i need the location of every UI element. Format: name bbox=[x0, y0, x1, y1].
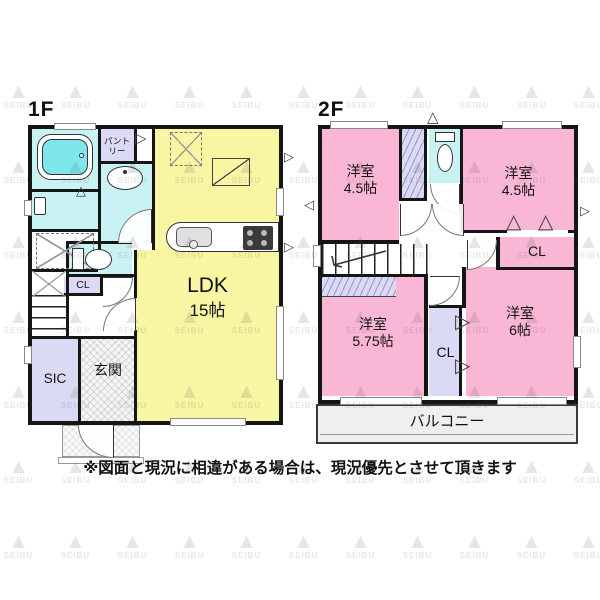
watermark-tile: ▲SEIBU bbox=[0, 532, 47, 560]
mountain-logo-icon: ▲ bbox=[560, 82, 600, 101]
stair-treads-1f bbox=[32, 295, 66, 338]
stove-burner-icon bbox=[261, 230, 267, 236]
watermark-brand: SEIBU bbox=[218, 101, 275, 110]
window bbox=[502, 121, 562, 129]
mountain-logo-icon: ▲ bbox=[47, 82, 104, 101]
bedroom-se-size: 6帖 bbox=[509, 322, 531, 340]
folding-door-icon: △ bbox=[76, 184, 86, 197]
watermark-brand: SEIBU bbox=[503, 551, 560, 560]
toilet-bowl-2f-icon bbox=[437, 144, 453, 172]
mountain-logo-icon: ▲ bbox=[161, 532, 218, 551]
bedroom-se-name: 洋室 bbox=[506, 305, 534, 323]
window bbox=[340, 397, 422, 405]
entrance-label: 玄関 bbox=[80, 360, 136, 382]
bedroom-ne-name: 洋室 bbox=[505, 165, 533, 183]
closet-ne-label: CL bbox=[500, 237, 574, 267]
mountain-logo-icon: ▲ bbox=[389, 82, 446, 101]
watermark-tile: ▲SEIBU bbox=[503, 532, 560, 560]
mountain-logo-icon: ▲ bbox=[104, 532, 161, 551]
watermark-tile: ▲SEIBU bbox=[389, 532, 446, 560]
window bbox=[573, 336, 581, 368]
wall bbox=[322, 274, 428, 277]
watermark-brand: SEIBU bbox=[389, 551, 446, 560]
watermark-tile: ▲SEIBU bbox=[218, 82, 275, 110]
gable-vent-icon: △ bbox=[427, 110, 439, 125]
watermark-brand: SEIBU bbox=[218, 551, 275, 560]
balcony-label: バルコニー bbox=[316, 411, 578, 433]
wall bbox=[568, 230, 574, 233]
watermark-tile: ▲SEIBU bbox=[560, 82, 600, 110]
bedroom-sw-size: 5.75帖 bbox=[352, 333, 393, 351]
wall bbox=[399, 198, 427, 201]
wall-vent-icon: ▷ bbox=[284, 150, 294, 163]
mountain-logo-icon: ▲ bbox=[104, 82, 161, 101]
watermark-brand: SEIBU bbox=[560, 551, 600, 560]
watermark-brand: SEIBU bbox=[503, 101, 560, 110]
window bbox=[330, 121, 388, 129]
watermark-brand: SEIBU bbox=[446, 101, 503, 110]
ldk-name: LDK bbox=[187, 273, 228, 299]
bedroom-nw-label: 洋室 4.5帖 bbox=[322, 150, 399, 210]
ldk-label: LDK 15帖 bbox=[136, 266, 279, 328]
stove-burner-icon bbox=[247, 230, 253, 236]
wall-vent-icon: ▷ bbox=[284, 240, 294, 253]
sic-label: SIC bbox=[32, 368, 78, 390]
mountain-logo-icon: ▲ bbox=[503, 82, 560, 101]
bedroom-se-label: 洋室 6帖 bbox=[466, 292, 574, 352]
mountain-logo-icon: ▲ bbox=[161, 82, 218, 101]
watermark-brand: SEIBU bbox=[161, 101, 218, 110]
window bbox=[313, 245, 321, 267]
mountain-logo-icon: ▲ bbox=[389, 532, 446, 551]
wall bbox=[399, 129, 402, 200]
window bbox=[24, 200, 32, 216]
wall bbox=[424, 277, 428, 396]
mountain-logo-icon: ▲ bbox=[47, 532, 104, 551]
toilet-bowl-1f-icon bbox=[85, 249, 112, 270]
mountain-logo-icon: ▲ bbox=[218, 532, 275, 551]
kitchen-drain-icon bbox=[189, 240, 198, 249]
floor2-tag: 2F bbox=[318, 98, 345, 122]
window bbox=[170, 418, 246, 426]
cupboard-icon bbox=[212, 158, 250, 186]
bedroom-sw-label: 洋室 5.75帖 bbox=[322, 303, 424, 363]
mountain-logo-icon: ▲ bbox=[332, 532, 389, 551]
closet-1f-label: CL bbox=[64, 277, 102, 294]
wall bbox=[463, 230, 507, 233]
bedroom-sw-name: 洋室 bbox=[359, 316, 387, 334]
watermark-brand: SEIBU bbox=[446, 551, 503, 560]
watermark-tile: ▲SEIBU bbox=[161, 532, 218, 560]
watermark-brand: SEIBU bbox=[47, 101, 104, 110]
floor-plan-image: 1F 2F ▷ △ ▷ ▷ LDK 15帖 bbox=[0, 0, 600, 600]
mountain-logo-icon: ▲ bbox=[446, 82, 503, 101]
ldk-size: 15帖 bbox=[190, 300, 226, 321]
toilet-tank-1f-icon bbox=[72, 248, 84, 270]
watermark-tile: ▲SEIBU bbox=[389, 82, 446, 110]
closet-sw bbox=[322, 277, 396, 297]
refrigerator-space-icon bbox=[170, 132, 202, 166]
closet-nw bbox=[402, 129, 424, 200]
stair-direction-arrow bbox=[324, 246, 394, 272]
floor1-tag: 1F bbox=[28, 98, 55, 122]
mountain-logo-icon: ▲ bbox=[446, 532, 503, 551]
bedroom-nw-size: 4.5帖 bbox=[344, 180, 377, 198]
stove-burner-icon bbox=[261, 240, 267, 246]
watermark-brand: SEIBU bbox=[161, 551, 218, 560]
mountain-logo-icon: ▲ bbox=[275, 532, 332, 551]
folding-door-icon: △ bbox=[538, 212, 553, 232]
washbasin-faucet-icon bbox=[123, 170, 127, 174]
wall bbox=[424, 129, 427, 201]
watermark-tile: ▲SEIBU bbox=[47, 82, 104, 110]
watermark-tile: ▲SEIBU bbox=[104, 532, 161, 560]
bath-drain-icon bbox=[79, 153, 84, 158]
mountain-logo-icon: ▲ bbox=[0, 532, 47, 551]
pantry-label: パントリー bbox=[100, 130, 134, 162]
watermark-brand: SEIBU bbox=[104, 551, 161, 560]
bedroom-nw-name: 洋室 bbox=[347, 163, 375, 181]
mountain-logo-icon: ▲ bbox=[503, 532, 560, 551]
watermark-brand: SEIBU bbox=[332, 551, 389, 560]
folding-door-icon: △ bbox=[506, 212, 521, 232]
balcony-inner-line bbox=[320, 434, 574, 435]
window bbox=[54, 123, 96, 130]
watermark-tile: ▲SEIBU bbox=[218, 532, 275, 560]
bedroom-ne-size: 4.5帖 bbox=[502, 182, 535, 200]
watermark-tile: ▲SEIBU bbox=[47, 532, 104, 560]
window bbox=[24, 346, 32, 364]
wall bbox=[32, 189, 98, 192]
wall-vent-icon: ◁ bbox=[304, 198, 314, 211]
watermark-tile: ▲SEIBU bbox=[446, 532, 503, 560]
utility-sink-icon bbox=[34, 197, 46, 215]
watermark-tile: ▲SEIBU bbox=[503, 82, 560, 110]
watermark-tile: ▲SEIBU bbox=[560, 532, 600, 560]
mountain-logo-icon: ▲ bbox=[218, 82, 275, 101]
watermark-tile: ▲SEIBU bbox=[446, 82, 503, 110]
stair-winders-1f bbox=[32, 271, 66, 297]
watermark-brand: SEIBU bbox=[560, 101, 600, 110]
wall bbox=[32, 229, 98, 232]
closet-mid-label: CL bbox=[429, 340, 462, 366]
watermark-tile: ▲SEIBU bbox=[275, 532, 332, 560]
watermark-tile: ▲SEIBU bbox=[161, 82, 218, 110]
wall bbox=[496, 267, 576, 270]
watermark-tile: ▲SEIBU bbox=[104, 82, 161, 110]
watermark-tile: ▲SEIBU bbox=[332, 532, 389, 560]
wall-vent-icon: ▷ bbox=[580, 204, 590, 217]
disclaimer-text: ※図面と現況に相違がある場合は、現況優先とさせて頂きます bbox=[0, 456, 600, 478]
wall bbox=[152, 129, 155, 250]
window bbox=[497, 397, 567, 405]
toilet-tank-2f-icon bbox=[435, 132, 455, 142]
window bbox=[276, 188, 284, 216]
bedroom-ne-label: 洋室 4.5帖 bbox=[463, 152, 574, 212]
door-swing-icon: ▷ bbox=[135, 131, 147, 146]
watermark-brand: SEIBU bbox=[0, 551, 47, 560]
mountain-logo-icon: ▲ bbox=[560, 532, 600, 551]
watermark-brand: SEIBU bbox=[275, 551, 332, 560]
watermark-brand: SEIBU bbox=[47, 551, 104, 560]
watermark-brand: SEIBU bbox=[104, 101, 161, 110]
stove-burner-icon bbox=[247, 240, 253, 246]
